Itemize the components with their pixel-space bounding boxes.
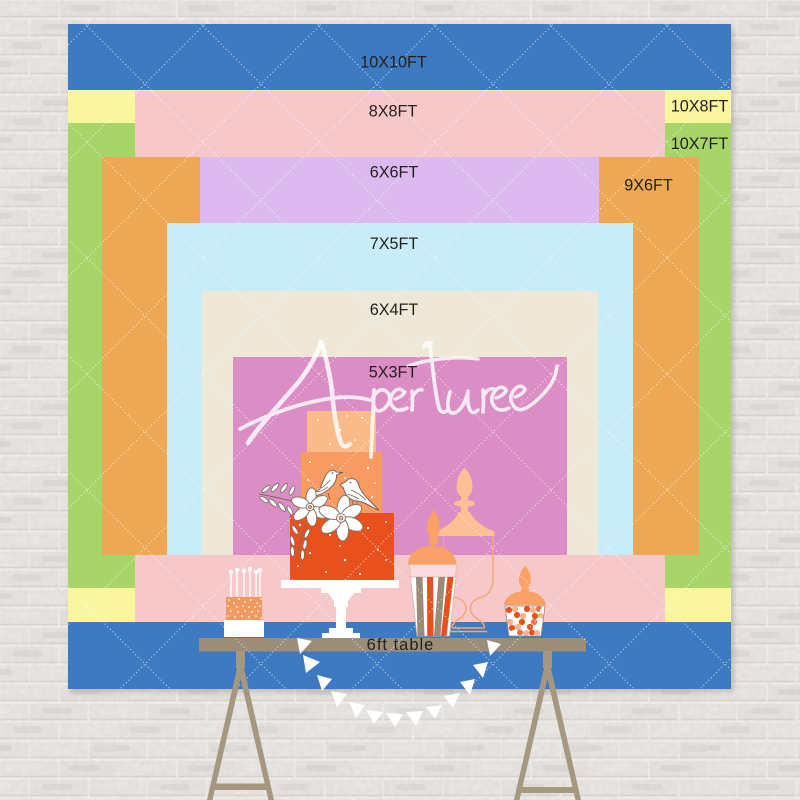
svg-text:10X7FT: 10X7FT [671, 135, 729, 153]
svg-text:9X6FT: 9X6FT [624, 177, 673, 195]
svg-text:6ft table: 6ft table [367, 636, 435, 654]
svg-text:7X5FT: 7X5FT [370, 235, 419, 253]
svg-text:5X3FT: 5X3FT [369, 364, 418, 382]
svg-text:10X8FT: 10X8FT [671, 98, 729, 116]
svg-text:6X4FT: 6X4FT [370, 301, 419, 319]
svg-text:8X8FT: 8X8FT [369, 103, 418, 121]
svg-text:10X10FT: 10X10FT [360, 54, 427, 72]
svg-text:6X6FT: 6X6FT [370, 164, 419, 182]
